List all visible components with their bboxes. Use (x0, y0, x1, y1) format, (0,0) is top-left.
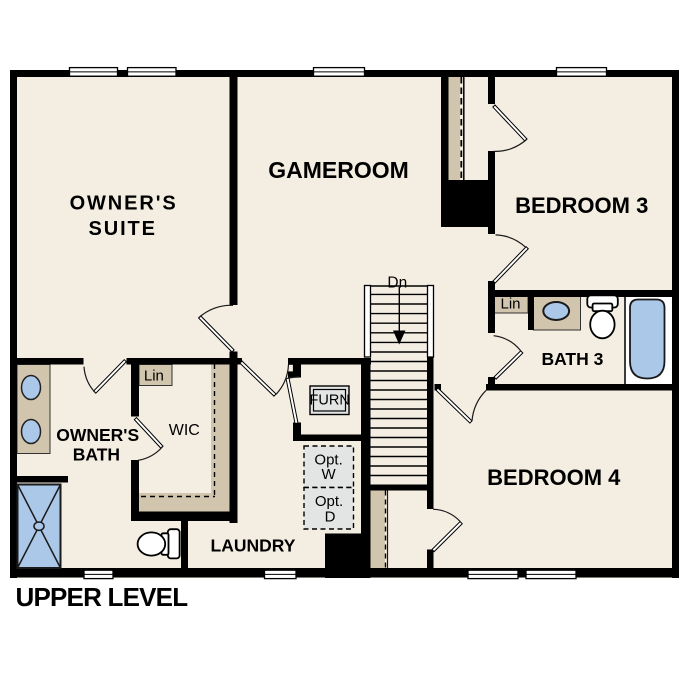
svg-text:Lin: Lin (500, 296, 520, 313)
svg-text:FURN: FURN (310, 393, 350, 409)
svg-text:BEDROOM 3: BEDROOM 3 (515, 193, 648, 218)
svg-text:Dn: Dn (387, 275, 407, 292)
svg-text:GAMEROOM: GAMEROOM (268, 157, 409, 183)
svg-text:UPPER LEVEL: UPPER LEVEL (16, 582, 189, 612)
svg-text:BEDROOM 4: BEDROOM 4 (487, 465, 621, 490)
svg-text:W: W (322, 466, 337, 483)
svg-text:OWNER'S: OWNER'S (70, 193, 178, 215)
svg-text:SUITE: SUITE (88, 218, 156, 240)
svg-text:WIC: WIC (169, 422, 200, 439)
svg-text:BATH 3: BATH 3 (541, 349, 603, 369)
svg-text:LAUNDRY: LAUNDRY (211, 535, 296, 555)
svg-text:Lin: Lin (144, 368, 164, 385)
svg-text:D: D (325, 509, 336, 526)
svg-text:OWNER'S: OWNER'S (56, 425, 139, 445)
svg-text:Opt.: Opt. (315, 493, 343, 510)
svg-text:BATH: BATH (73, 444, 120, 464)
